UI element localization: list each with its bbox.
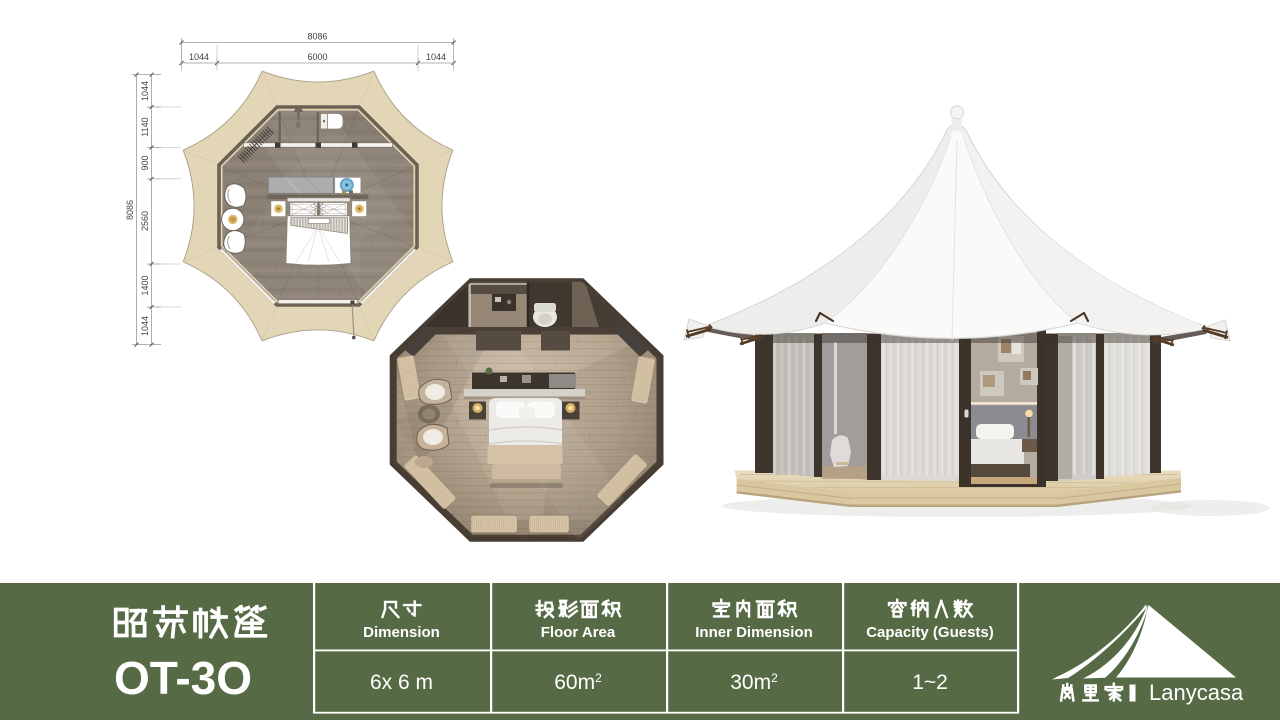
svg-text:1044: 1044	[426, 52, 446, 62]
svg-text:1140: 1140	[140, 117, 150, 136]
svg-text:60m2: 60m2	[554, 671, 602, 694]
svg-text:Capacity (Guests): Capacity (Guests)	[866, 624, 994, 641]
svg-text:Floor Area: Floor Area	[541, 624, 616, 641]
svg-text:900: 900	[140, 155, 150, 170]
svg-text:1044: 1044	[140, 316, 150, 336]
svg-text:Lanycasa: Lanycasa	[1149, 680, 1244, 705]
svg-text:6000: 6000	[307, 52, 327, 62]
svg-text:8086: 8086	[307, 32, 327, 42]
svg-text:Inner Dimension: Inner Dimension	[695, 624, 813, 641]
svg-text:1~2: 1~2	[912, 671, 948, 694]
svg-text:1400: 1400	[140, 275, 150, 295]
svg-text:1044: 1044	[189, 52, 209, 62]
svg-text:1044: 1044	[140, 81, 150, 101]
svg-text:8086: 8086	[125, 200, 135, 220]
svg-text:30m2: 30m2	[730, 671, 778, 694]
svg-text:2560: 2560	[140, 211, 150, 231]
svg-text:6x 6 m: 6x 6 m	[370, 671, 433, 694]
svg-text:Dimension: Dimension	[363, 624, 440, 641]
svg-text:OT-3O: OT-3O	[114, 652, 252, 704]
